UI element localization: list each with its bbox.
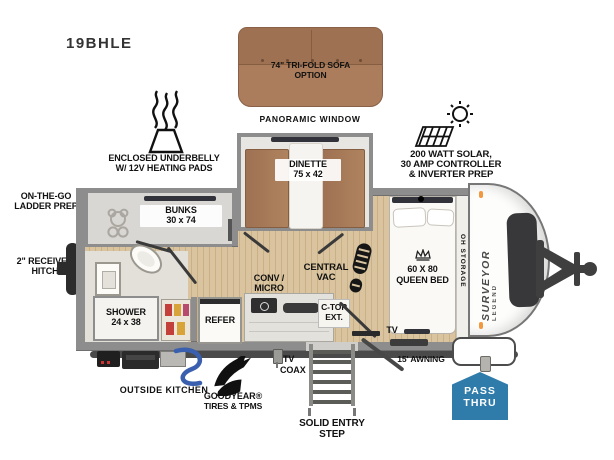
kitchen-divider-wall — [191, 297, 197, 342]
tv-coax-label-line1: TV — [283, 355, 317, 365]
pass-thru-badge: PASS THRU — [452, 372, 508, 420]
surveyor-text: SURVEYOR — [480, 199, 492, 321]
step-rung — [313, 380, 351, 384]
legend-text: LEGEND — [492, 213, 498, 321]
step-rail-right — [351, 344, 355, 406]
ctop-ext-label-line2: EXT. — [319, 313, 349, 322]
counter-line — [249, 322, 329, 323]
wardrobe-clothes — [165, 304, 172, 316]
sofa-option-label-line2: OPTION — [239, 71, 382, 80]
bunks-label-line2: 30 x 74 — [143, 216, 219, 226]
bed-pillow-left — [393, 207, 427, 228]
sun-icon — [447, 101, 473, 127]
teddy-bear-icon — [104, 207, 132, 239]
toilet-bowl — [134, 248, 157, 270]
solar-panel-icon — [412, 100, 482, 150]
crown-icon — [414, 249, 432, 261]
refer-label: REFER — [200, 316, 240, 326]
indicator-dot — [107, 361, 110, 364]
dinette-window — [271, 137, 339, 142]
step-rung — [313, 400, 351, 404]
outside-kitchen-box-b — [122, 351, 159, 369]
sink-basin — [102, 271, 116, 289]
pass-thru-label-line2: THRU — [452, 398, 508, 410]
tv-coax-label-line2: COAX — [280, 366, 314, 376]
outside-kitchen-vent — [126, 355, 155, 360]
ctop-ext-card: C-TOP EXT. — [318, 299, 350, 328]
step-rung — [313, 360, 351, 364]
panoramic-window-label: PANORAMIC WINDOW — [250, 115, 370, 124]
dinette-table — [289, 143, 323, 229]
queen-bed-label-line1: 60 X 80 — [390, 265, 455, 275]
step-rung — [313, 370, 351, 374]
coax-connector-icon — [273, 349, 283, 364]
tv-screen — [352, 331, 380, 336]
rear-wall — [76, 188, 85, 351]
goodyear-wingfoot-icon — [208, 356, 258, 396]
bed-overhead-window — [392, 197, 453, 203]
tongue-hitch — [524, 238, 598, 300]
pass-thru-label-line1: PASS — [452, 386, 508, 398]
kitchen-sink — [283, 303, 319, 313]
shower-label-line2: 24 x 38 — [95, 318, 157, 328]
marker-light-top — [479, 191, 483, 198]
vanity-sink — [95, 262, 121, 296]
wardrobe-clothes — [166, 322, 174, 335]
wardrobe-clothes — [174, 304, 181, 316]
step-rung — [313, 350, 351, 354]
oh-storage-label: OH STORAGE — [459, 234, 466, 288]
queen-bed: 60 X 80 QUEEN BED — [389, 196, 456, 334]
speaker-dot — [418, 196, 424, 202]
pass-thru-latch — [480, 356, 491, 372]
coax-stem — [276, 362, 278, 368]
counter-line — [249, 331, 329, 332]
outside-kitchen-box-a — [97, 351, 120, 367]
heat-waves-icon — [144, 90, 188, 154]
bunks: BUNKS 30 x 74 — [85, 193, 235, 247]
wardrobe — [161, 299, 191, 341]
step-foot — [308, 408, 311, 416]
marker-light-bottom — [479, 322, 483, 329]
queen-bed-label-line2: QUEEN BED — [390, 276, 455, 286]
dinette-label-line2: 75 x 42 — [278, 170, 338, 180]
bed-pillow-right — [427, 208, 455, 226]
solar-prep-label-line3: & INVERTER PREP — [388, 170, 514, 180]
floorplan-canvas: 19BHLE 74" TRI-FOLD SOFA OPTION PANORAMI… — [0, 0, 614, 460]
brand-logo: SURVEYOR LEGEND — [480, 199, 498, 321]
receiver-hitch-tube — [57, 262, 68, 275]
refer-top-vent — [200, 299, 240, 304]
wardrobe-clothes — [177, 322, 185, 335]
microwave-dial — [260, 302, 269, 311]
goodyear-label-line2: TIRES & TPMS — [192, 402, 274, 411]
ladder-prep-label-line2: LADDER PREP — [8, 202, 84, 212]
entry-step — [307, 344, 357, 410]
bunk-window — [144, 196, 216, 201]
sofa-option-label-line1: 74" TRI-FOLD SOFA — [239, 61, 382, 70]
shower: SHOWER 24 x 38 — [93, 296, 159, 341]
awning-bracket — [390, 339, 428, 346]
tv-label: TV — [383, 326, 401, 336]
conv-micro-label-line2: MICRO — [246, 284, 292, 294]
step-foot — [353, 408, 356, 416]
model-number: 19BHLE — [66, 36, 133, 53]
sofa-option: 74" TRI-FOLD SOFA OPTION — [238, 27, 383, 107]
indicator-dot — [101, 361, 104, 364]
bunks-label: BUNKS 30 x 74 — [140, 205, 222, 227]
awning-label: 15' AWNING — [392, 355, 450, 364]
step-rung — [313, 390, 351, 394]
wardrobe-clothes — [183, 304, 189, 316]
microwave-icon — [251, 298, 277, 313]
refrigerator: REFER — [198, 297, 242, 344]
entry-step-label-line1: SOLID ENTRY — [288, 418, 376, 429]
entry-step-label-line2: STEP — [288, 429, 376, 440]
dinette-slide: DINETTE 75 x 42 — [237, 133, 373, 231]
enclosed-underbelly-label-line2: W/ 12V HEATING PADS — [94, 164, 234, 174]
dinette-label: DINETTE 75 x 42 — [275, 159, 341, 181]
bedroom-window — [404, 329, 430, 334]
